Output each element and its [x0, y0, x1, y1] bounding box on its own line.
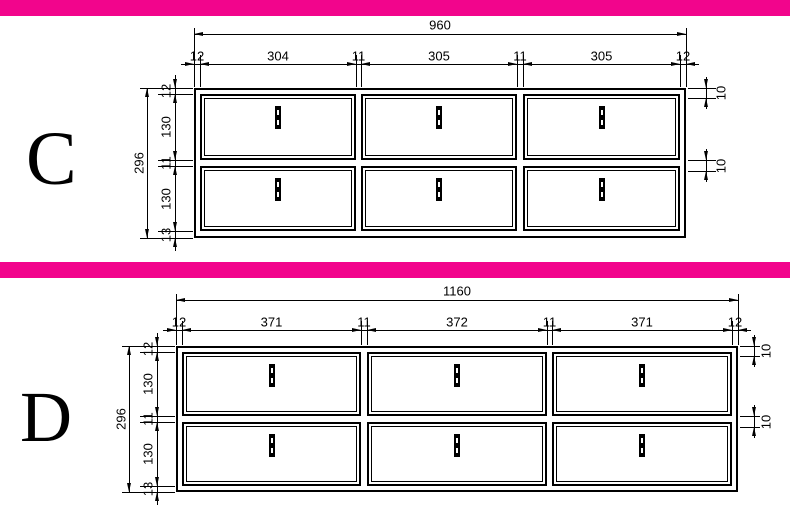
dim-arrow — [752, 427, 756, 436]
dim-arrow — [704, 151, 708, 160]
dim-label: 296 — [133, 152, 146, 174]
dim-label: 11 — [352, 50, 366, 63]
door-handle — [275, 178, 281, 201]
dim-label: 10 — [760, 414, 773, 428]
dim-line — [163, 330, 751, 331]
dim-label: 130 — [160, 116, 173, 138]
dim-arrow — [173, 238, 177, 247]
dim-label: 305 — [591, 50, 613, 63]
drawing-label: D — [20, 381, 72, 453]
separator-bar-top — [0, 0, 790, 16]
dim-line — [147, 88, 148, 238]
door-handle — [639, 364, 645, 387]
dim-arrow — [173, 222, 177, 231]
dim-arrow — [704, 98, 708, 107]
extension-line — [688, 98, 716, 99]
dim-label: 371 — [261, 316, 283, 329]
dim-label: 12 — [676, 50, 690, 63]
dim-label: 11 — [513, 50, 527, 63]
dim-line — [176, 300, 738, 301]
drawing-label: C — [26, 121, 77, 197]
dim-label: 304 — [267, 50, 289, 63]
dim-label: 10 — [760, 344, 773, 358]
dim-arrow — [145, 229, 149, 238]
dim-line — [194, 34, 686, 35]
dim-arrow — [155, 477, 159, 486]
dim-label: 305 — [428, 50, 450, 63]
dim-arrow — [155, 337, 159, 346]
dim-label: 11 — [142, 412, 155, 426]
door-handle — [599, 178, 605, 201]
dim-arrow — [752, 356, 756, 365]
extension-line — [740, 356, 760, 357]
dim-arrow — [704, 79, 708, 88]
extension-line — [740, 416, 760, 417]
dim-line — [181, 64, 699, 65]
dim-label: 130 — [160, 188, 173, 210]
extension-line — [688, 160, 716, 161]
door-handle — [436, 106, 442, 129]
dim-label: 13 — [142, 482, 155, 496]
dim-arrow — [173, 151, 177, 160]
dim-label: 371 — [631, 316, 653, 329]
dim-label: 12 — [190, 50, 204, 63]
door-handle — [454, 364, 460, 387]
door-handle — [436, 178, 442, 201]
door-handle — [269, 434, 275, 457]
dim-arrow — [127, 483, 131, 492]
dim-arrow — [173, 94, 177, 103]
dim-arrow — [173, 79, 177, 88]
dim-arrow — [752, 337, 756, 346]
extension-line — [688, 88, 716, 89]
dim-arrow — [729, 298, 738, 302]
door-handle — [599, 106, 605, 129]
dim-label: 11 — [543, 316, 557, 329]
dim-label: 12 — [142, 342, 155, 356]
dim-label: 13 — [160, 227, 173, 241]
dim-arrow — [127, 346, 131, 355]
dim-arrow — [176, 298, 185, 302]
dim-label: 11 — [357, 316, 371, 329]
dim-arrow — [155, 492, 159, 501]
dim-label: 10 — [715, 158, 728, 172]
door-handle — [454, 434, 460, 457]
dim-label: 130 — [142, 443, 155, 465]
dim-label: 11 — [160, 156, 173, 170]
dim-label: 372 — [446, 316, 468, 329]
dim-label: 12 — [728, 316, 742, 329]
door-handle — [639, 434, 645, 457]
dim-line — [129, 346, 130, 492]
dim-label: 1160 — [443, 285, 471, 298]
door-handle — [269, 364, 275, 387]
dim-arrow — [677, 32, 686, 36]
extension-line — [740, 346, 760, 347]
dim-label: 960 — [429, 19, 451, 32]
dim-arrow — [704, 171, 708, 180]
technical-drawing-sheet: 960123041130511305122961213011130131010C… — [0, 0, 790, 518]
dim-label: 10 — [715, 86, 728, 100]
separator-bar-middle — [0, 262, 790, 278]
dim-arrow — [155, 352, 159, 361]
dim-arrow — [194, 32, 203, 36]
extension-line — [688, 171, 716, 172]
dim-label: 296 — [115, 408, 128, 430]
dim-label: 12 — [160, 84, 173, 98]
dim-label: 130 — [142, 373, 155, 395]
dim-arrow — [155, 422, 159, 431]
dim-arrow — [752, 407, 756, 416]
extension-line — [740, 427, 760, 428]
door-handle — [275, 106, 281, 129]
dim-arrow — [145, 88, 149, 97]
dim-arrow — [155, 407, 159, 416]
dim-arrow — [173, 166, 177, 175]
dim-label: 12 — [172, 316, 186, 329]
